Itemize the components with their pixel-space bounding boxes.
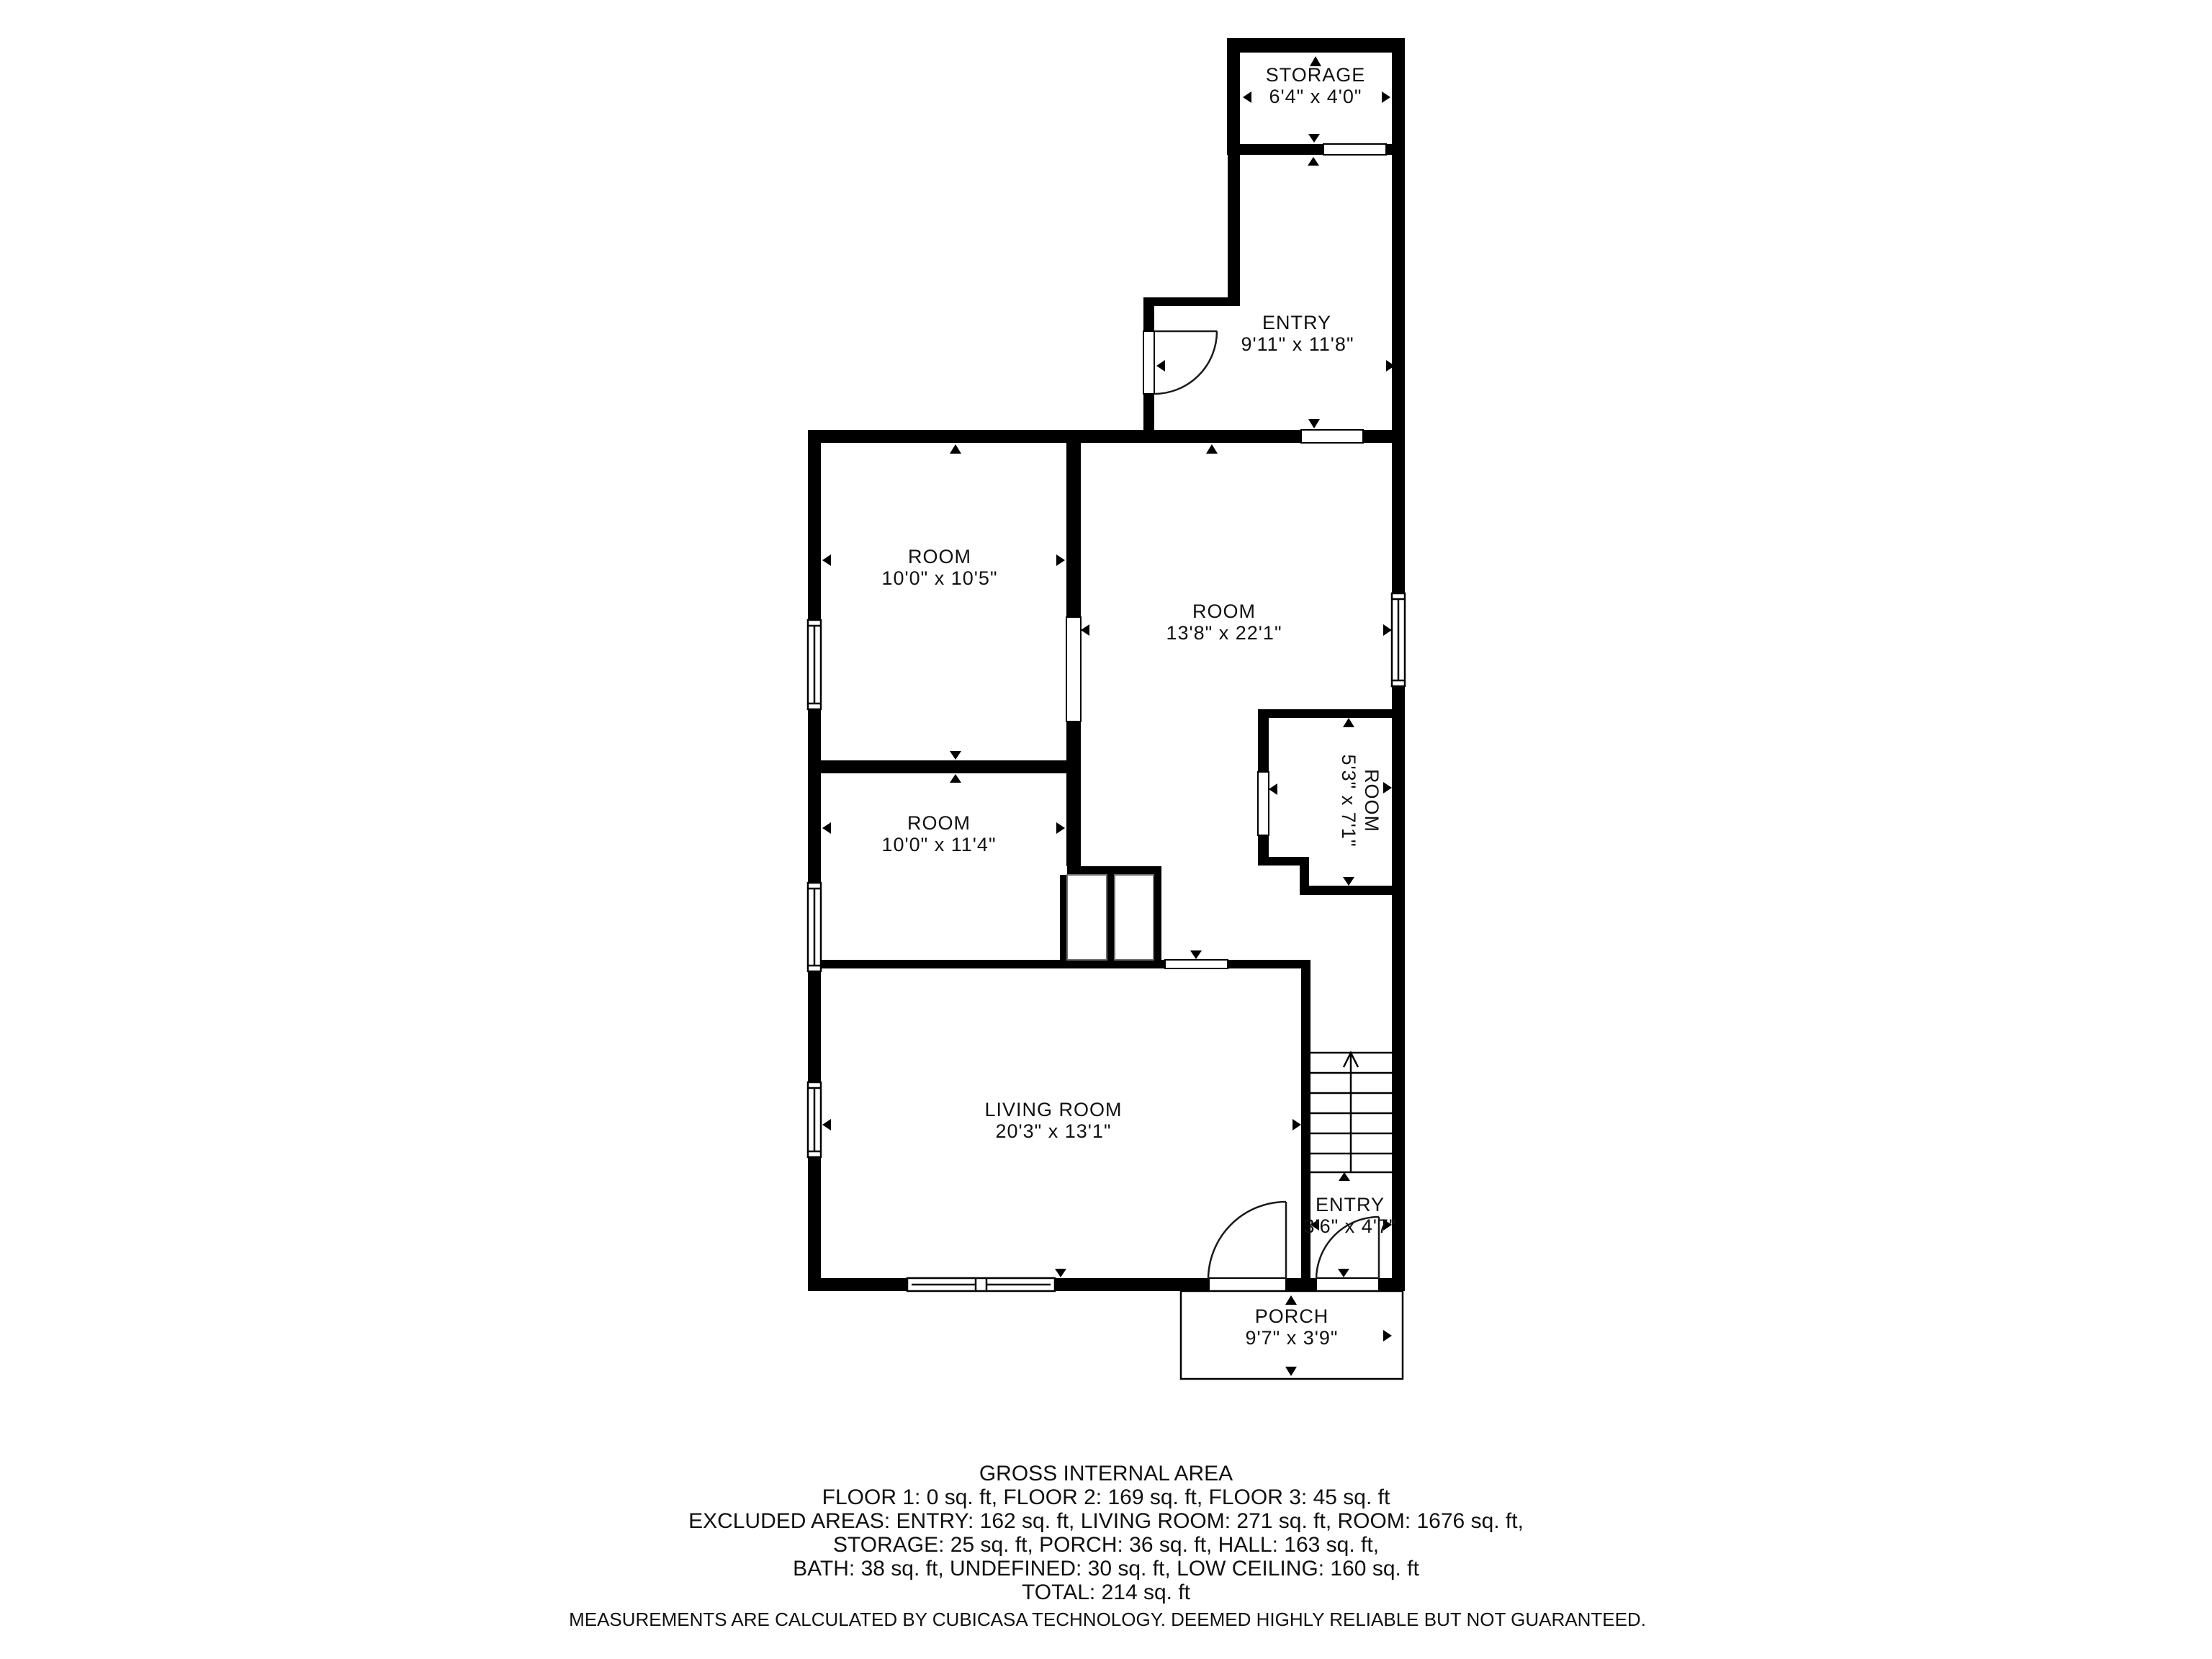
room-name: PORCH <box>1255 1305 1329 1327</box>
small-room-door-opening <box>1258 772 1269 835</box>
room-label-room-large: ROOM 13'8" x 22'1" <box>1166 601 1282 644</box>
room-label-storage: STORAGE 6'4" x 4'0" <box>1266 64 1366 107</box>
room-label-porch: PORCH 9'7" x 3'9" <box>1245 1305 1338 1349</box>
room-label-room1: ROOM 10'0" x 10'5" <box>881 546 997 589</box>
room-dims: 10'0" x 11'4" <box>881 834 996 855</box>
window <box>808 1082 821 1157</box>
room-dims: 6'4" x 4'0" <box>1269 86 1362 107</box>
room-dims: 9'7" x 3'9" <box>1245 1327 1338 1349</box>
window <box>808 620 821 709</box>
hall-to-living-opening <box>1165 960 1228 968</box>
room-dims: 9'11" x 11'8" <box>1241 333 1354 355</box>
room-label-room2: ROOM 10'0" x 11'4" <box>881 812 996 855</box>
closet-cell <box>1067 875 1107 960</box>
room-dims: 13'8" x 22'1" <box>1166 622 1282 644</box>
living-room-door-swing <box>1208 1202 1286 1280</box>
room-label-entry-lower: ENTRY 3'6" x 4'7" <box>1303 1194 1396 1237</box>
entry-upper-door-opening <box>1143 331 1154 394</box>
double-window <box>907 1278 1055 1291</box>
window <box>1392 593 1405 686</box>
room-label-living: LIVING ROOM 20'3" x 13'1" <box>984 1099 1122 1142</box>
summary-line: FLOOR 1: 0 sq. ft, FLOOR 2: 169 sq. ft, … <box>822 1485 1390 1509</box>
closet-cell <box>1115 875 1154 960</box>
area-summary: GROSS INTERNAL AREA FLOOR 1: 0 sq. ft, F… <box>569 1462 1646 1630</box>
room-name: ENTRY <box>1316 1194 1385 1215</box>
room-dims: 10'0" x 10'5" <box>881 567 997 589</box>
room-name: ENTRY <box>1262 312 1331 333</box>
summary-disclaimer: MEASUREMENTS ARE CALCULATED BY CUBICASA … <box>569 1609 1646 1630</box>
room-name: ROOM <box>907 812 971 834</box>
summary-title: GROSS INTERNAL AREA <box>979 1462 1233 1485</box>
room-dims: 20'3" x 13'1" <box>995 1120 1111 1142</box>
staircase <box>1310 1053 1392 1172</box>
summary-total: TOTAL: 214 sq. ft <box>1022 1581 1191 1604</box>
room-name: ROOM <box>1361 769 1382 832</box>
room-dims: 3'6" x 4'7" <box>1303 1215 1396 1237</box>
room-name: STORAGE <box>1266 64 1366 86</box>
room-label-entry-upper: ENTRY 9'11" x 11'8" <box>1241 312 1354 355</box>
room-name: LIVING ROOM <box>984 1099 1122 1120</box>
room-label-room-small: ROOM 5'3" x 7'1" <box>1338 754 1382 847</box>
floor-plan: STORAGE 6'4" x 4'0" ENTRY 9'11" x 11'8" … <box>0 0 2212 1659</box>
room1-door-opening <box>1066 617 1081 721</box>
summary-line: EXCLUDED AREAS: ENTRY: 162 sq. ft, LIVIN… <box>688 1509 1524 1533</box>
living-porch-door-opening <box>1209 1278 1286 1291</box>
room-name: ROOM <box>1192 601 1256 622</box>
entry-porch-door-opening <box>1316 1278 1379 1291</box>
entry-to-room-opening <box>1301 430 1363 443</box>
summary-line: STORAGE: 25 sq. ft, PORCH: 36 sq. ft, HA… <box>833 1533 1379 1557</box>
room-labels-layer: STORAGE 6'4" x 4'0" ENTRY 9'11" x 11'8" … <box>881 64 1396 1349</box>
window <box>808 883 821 971</box>
summary-line: BATH: 38 sq. ft, UNDEFINED: 30 sq. ft, L… <box>793 1557 1419 1581</box>
room-dims: 5'3" x 7'1" <box>1338 754 1359 847</box>
storage-door-opening <box>1323 144 1386 155</box>
floor-plan-page: STORAGE 6'4" x 4'0" ENTRY 9'11" x 11'8" … <box>0 0 2212 1659</box>
room-name: ROOM <box>908 546 971 567</box>
